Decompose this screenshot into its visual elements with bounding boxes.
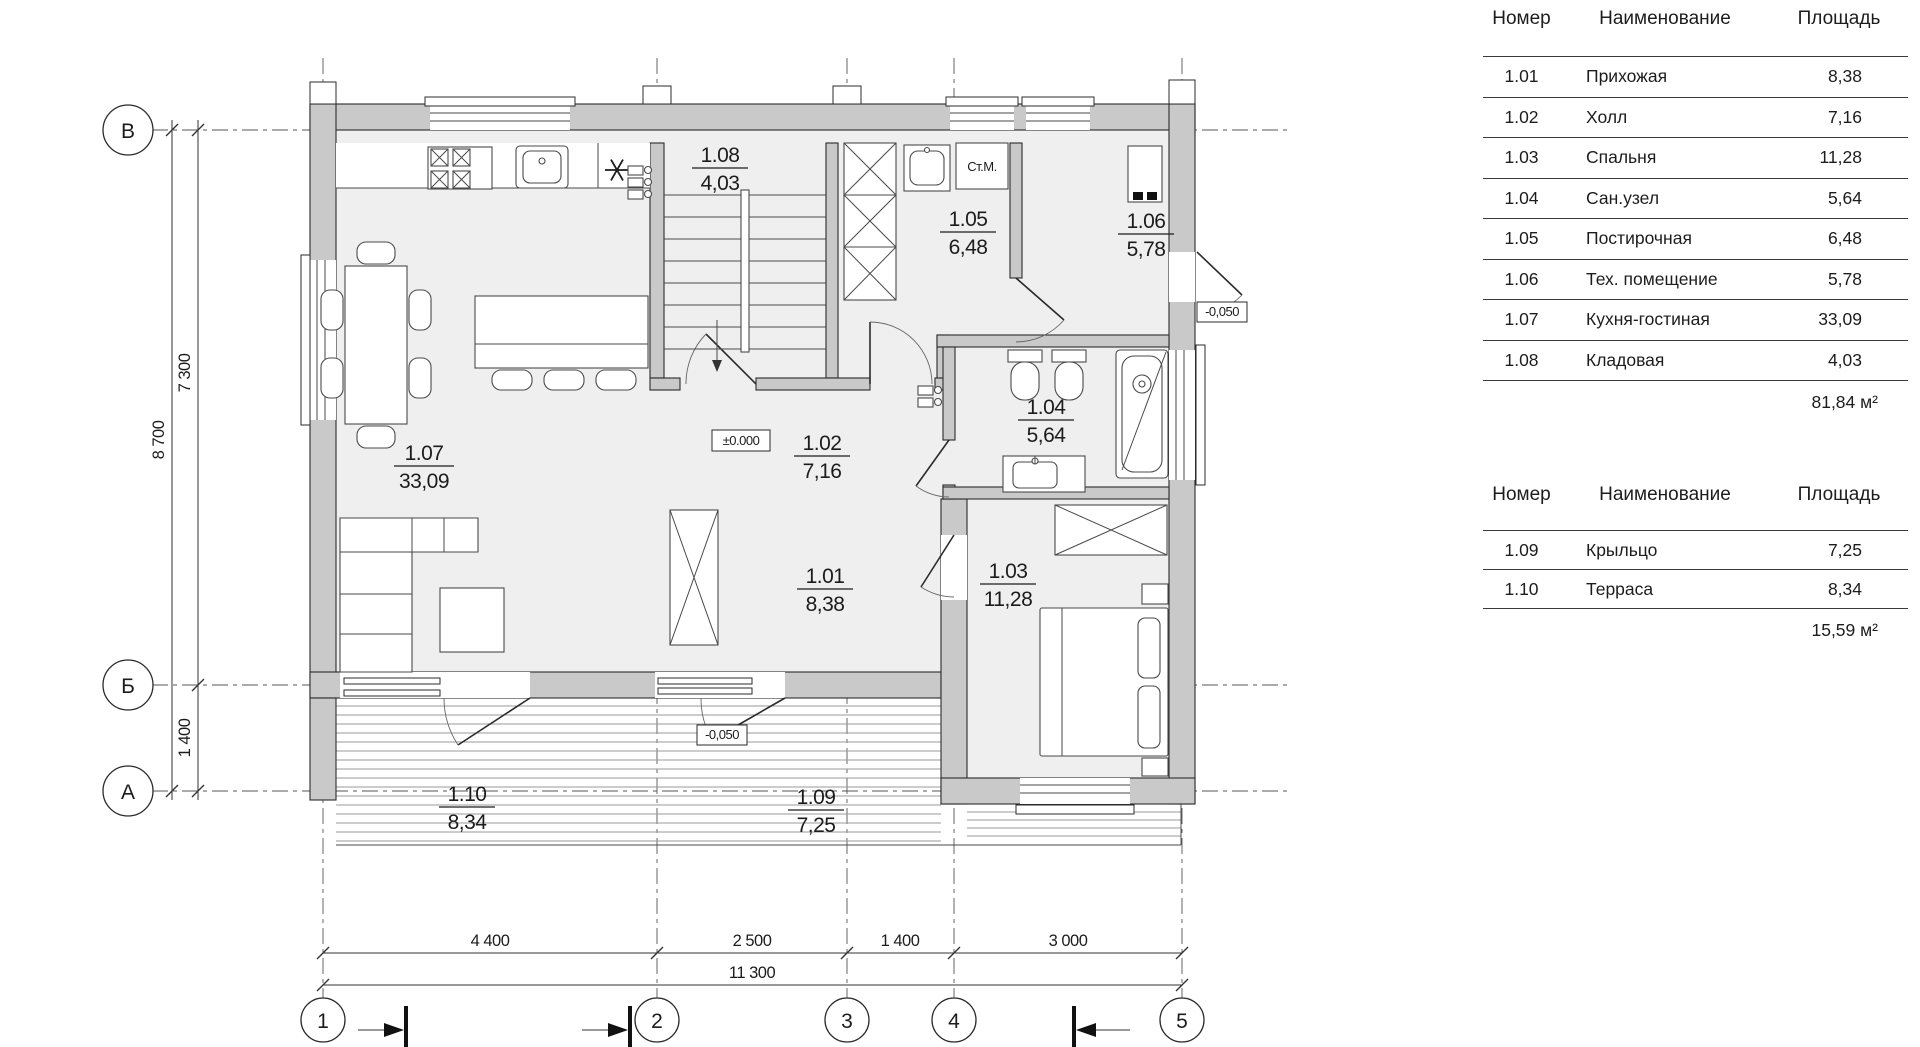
svg-text:1.03: 1.03 xyxy=(989,560,1028,583)
elevation-tech-exit: -0,050 xyxy=(1197,302,1247,322)
table-row: 1.04Сан.узел5,64 xyxy=(1483,179,1908,220)
svg-text:1.07: 1.07 xyxy=(405,442,444,465)
pillow xyxy=(1138,686,1160,748)
table-row: 1.06Тех. помещение5,78 xyxy=(1483,260,1908,301)
axis-circle-a: А xyxy=(103,766,153,816)
pillow xyxy=(1138,618,1160,678)
nightstand xyxy=(1142,758,1168,776)
dim-3000: 3 000 xyxy=(1049,932,1088,950)
drawing-sheet: Ст.М. xyxy=(0,0,1920,1047)
svg-text:1.06: 1.06 xyxy=(1127,210,1166,233)
svg-text:33,09: 33,09 xyxy=(399,470,449,493)
laundry-cabinet xyxy=(844,143,896,300)
svg-text:5: 5 xyxy=(1176,1010,1188,1033)
living-window xyxy=(301,255,336,425)
entry-wardrobe xyxy=(670,510,718,645)
header-area: Площадь xyxy=(1770,8,1908,56)
bedroom-window xyxy=(1016,778,1134,814)
cell-area: 6,48 xyxy=(1770,228,1908,249)
svg-text:3: 3 xyxy=(841,1010,853,1033)
svg-text:1.09: 1.09 xyxy=(797,786,836,809)
cell-num: 1.09 xyxy=(1483,540,1560,561)
cell-name: Кухня-гостиная xyxy=(1560,309,1770,330)
svg-text:1.08: 1.08 xyxy=(701,144,740,167)
cell-name: Кладовая xyxy=(1560,350,1770,371)
cell-num: 1.10 xyxy=(1483,579,1560,600)
cell-area: 33,09 xyxy=(1770,309,1908,330)
svg-text:7,16: 7,16 xyxy=(803,460,842,483)
svg-text:В: В xyxy=(121,120,135,143)
cell-name: Спальня xyxy=(1560,147,1770,168)
elevation-zero: ±0.000 xyxy=(712,430,770,451)
svg-text:5,64: 5,64 xyxy=(1027,424,1067,447)
svg-text:1.05: 1.05 xyxy=(949,208,988,231)
svg-text:2: 2 xyxy=(651,1010,663,1033)
washing-machine-label: Ст.М. xyxy=(967,159,996,174)
laundry-sink xyxy=(904,145,950,191)
kitchen-sink xyxy=(516,146,568,188)
total-area: 81,84 м² xyxy=(1770,392,1908,413)
cell-num: 1.06 xyxy=(1483,269,1560,290)
header-num: Номер xyxy=(1483,8,1560,56)
kitchen-window xyxy=(425,97,575,130)
outdoor-schedule-table: Номер Наименование Площадь 1.09Крыльцо7,… xyxy=(1483,470,1908,651)
table-total-row: 81,84 м² xyxy=(1483,381,1908,423)
pier-axis2 xyxy=(643,86,671,104)
axis-circle-b: Б xyxy=(103,660,153,710)
pier-top-right xyxy=(1169,80,1195,104)
kitchen-island xyxy=(475,296,648,390)
washing-machine: Ст.М. xyxy=(956,143,1008,189)
bedroom-wardrobe xyxy=(1055,505,1167,555)
boiler xyxy=(1128,146,1162,202)
cell-name: Постирочная xyxy=(1560,228,1770,249)
cell-num: 1.08 xyxy=(1483,350,1560,371)
svg-text:11,28: 11,28 xyxy=(984,588,1033,611)
cell-area: 7,16 xyxy=(1770,107,1908,128)
stair-rail xyxy=(741,190,749,352)
table-row: 1.09Крыльцо7,25 xyxy=(1483,531,1908,570)
vanity-sink xyxy=(1003,456,1085,492)
cell-area: 5,78 xyxy=(1770,269,1908,290)
cell-num: 1.03 xyxy=(1483,147,1560,168)
cell-area: 7,25 xyxy=(1770,540,1908,561)
svg-text:1: 1 xyxy=(317,1010,329,1033)
svg-text:-0,050: -0,050 xyxy=(1205,304,1239,319)
axis-circle-4: 4 xyxy=(932,998,976,1042)
schedule-header: Номер Наименование Площадь xyxy=(1483,0,1908,57)
cell-num: 1.07 xyxy=(1483,309,1560,330)
svg-text:6,48: 6,48 xyxy=(949,236,988,259)
dim-2500: 2 500 xyxy=(733,932,772,950)
svg-text:7,25: 7,25 xyxy=(797,814,836,837)
table-row: 1.10Терраса8,34 xyxy=(1483,570,1908,609)
dim-1400-bottom: 1 400 xyxy=(881,932,920,950)
cell-name: Терраса xyxy=(1560,579,1770,600)
svg-text:1.01: 1.01 xyxy=(806,565,845,588)
total-area: 15,59 м² xyxy=(1770,620,1908,641)
svg-text:-0,050: -0,050 xyxy=(705,727,739,742)
svg-text:4,03: 4,03 xyxy=(701,172,740,195)
elevation-porch: -0,050 xyxy=(697,725,747,745)
pier-top-left xyxy=(310,82,336,104)
cell-area: 8,34 xyxy=(1770,579,1908,600)
cooktop xyxy=(428,147,492,189)
table-row: 1.02Холл7,16 xyxy=(1483,98,1908,139)
toilet xyxy=(1008,350,1042,400)
svg-text:8,38: 8,38 xyxy=(806,593,845,616)
cell-num: 1.04 xyxy=(1483,188,1560,209)
dim-4400: 4 400 xyxy=(471,932,510,950)
table-row: 1.03Спальня11,28 xyxy=(1483,138,1908,179)
cell-num: 1.05 xyxy=(1483,228,1560,249)
svg-text:8,34: 8,34 xyxy=(448,811,488,834)
cell-area: 5,64 xyxy=(1770,188,1908,209)
svg-text:4: 4 xyxy=(948,1010,960,1033)
bed xyxy=(1040,584,1168,776)
svg-text:±0.000: ±0.000 xyxy=(723,433,760,448)
dim-1400-left: 1 400 xyxy=(176,718,194,757)
pier-axis3 xyxy=(833,86,861,104)
cell-name: Крыльцо xyxy=(1560,540,1770,561)
cell-num: 1.02 xyxy=(1483,107,1560,128)
svg-text:5,78: 5,78 xyxy=(1127,238,1166,261)
header-num: Номер xyxy=(1483,484,1560,530)
svg-text:А: А xyxy=(121,781,135,804)
radiator-kitchen xyxy=(628,166,652,199)
bathtub xyxy=(1116,350,1168,478)
cell-name: Холл xyxy=(1560,107,1770,128)
table-total-row: 15,59 м² xyxy=(1483,609,1908,651)
axis-circle-1: 1 xyxy=(301,998,345,1042)
dim-8700: 8 700 xyxy=(150,420,168,459)
room-schedule-table: Номер Наименование Площадь 1.01Прихожая8… xyxy=(1483,0,1908,423)
table-row: 1.01Прихожая8,38 xyxy=(1483,57,1908,98)
header-area: Площадь xyxy=(1770,484,1908,530)
cell-num: 1.01 xyxy=(1483,66,1560,87)
axis-circle-2: 2 xyxy=(635,998,679,1042)
cell-area: 8,38 xyxy=(1770,66,1908,87)
dimension-bottom: 4 400 2 500 1 400 3 000 11 300 xyxy=(317,932,1188,991)
laundry-window xyxy=(946,97,1018,130)
cell-area: 4,03 xyxy=(1770,350,1908,371)
header-name: Наименование xyxy=(1560,8,1770,56)
section-marks xyxy=(358,1006,1130,1047)
nightstand xyxy=(1142,584,1168,604)
axis-circle-v: В xyxy=(103,105,153,155)
svg-text:1.02: 1.02 xyxy=(803,432,842,455)
header-name: Наименование xyxy=(1560,484,1770,530)
axis-circle-3: 3 xyxy=(825,998,869,1042)
cell-name: Сан.узел xyxy=(1560,188,1770,209)
cell-area: 11,28 xyxy=(1770,147,1908,168)
axis-circle-5: 5 xyxy=(1160,998,1204,1042)
dimension-left: 7 300 8 700 1 400 xyxy=(150,120,204,800)
dim-11300: 11 300 xyxy=(729,964,776,982)
table-row: 1.07Кухня-гостиная33,09 xyxy=(1483,300,1908,341)
dim-7300: 7 300 xyxy=(176,353,194,392)
kitchen-counter xyxy=(336,143,650,189)
tech-window xyxy=(1022,97,1094,130)
svg-text:1.04: 1.04 xyxy=(1027,396,1067,419)
coffee-table xyxy=(440,588,504,652)
svg-text:1.10: 1.10 xyxy=(448,783,487,806)
table-row: 1.05Постирочная6,48 xyxy=(1483,219,1908,260)
bathroom-window xyxy=(1169,345,1205,485)
schedule-header: Номер Наименование Площадь xyxy=(1483,470,1908,531)
table-row: 1.08Кладовая4,03 xyxy=(1483,341,1908,382)
bidet xyxy=(1052,350,1086,400)
room-label-1-09: 1.097,25 xyxy=(788,786,844,837)
cell-name: Тех. помещение xyxy=(1560,269,1770,290)
svg-text:Б: Б xyxy=(121,675,135,698)
cell-name: Прихожая xyxy=(1560,66,1770,87)
